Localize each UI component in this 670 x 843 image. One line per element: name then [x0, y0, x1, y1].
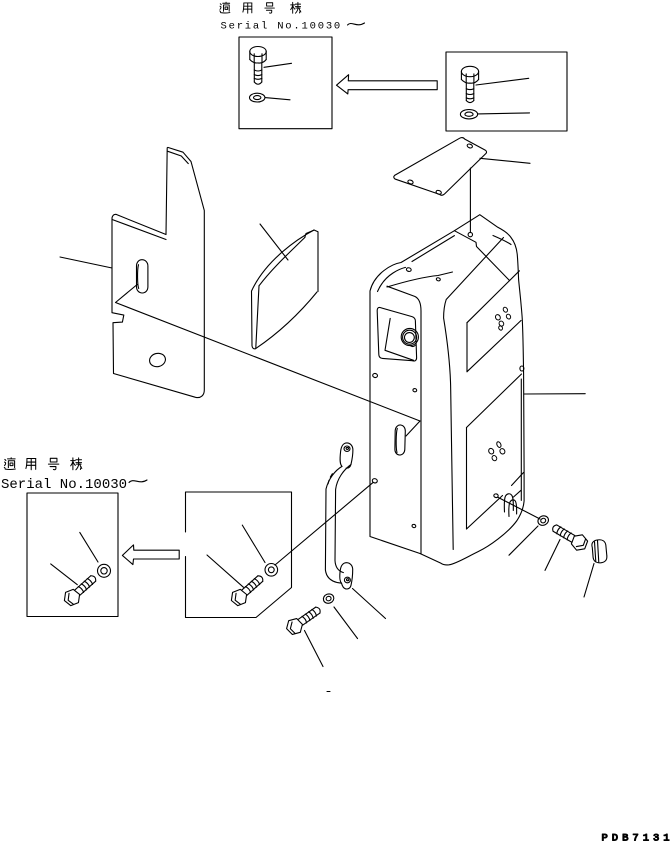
svg-text:Serial No.10030: Serial No.10030 [1, 477, 127, 493]
svg-text:Serial No.10030: Serial No.10030 [221, 21, 343, 33]
svg-text:PDB7131: PDB7131 [602, 833, 670, 843]
